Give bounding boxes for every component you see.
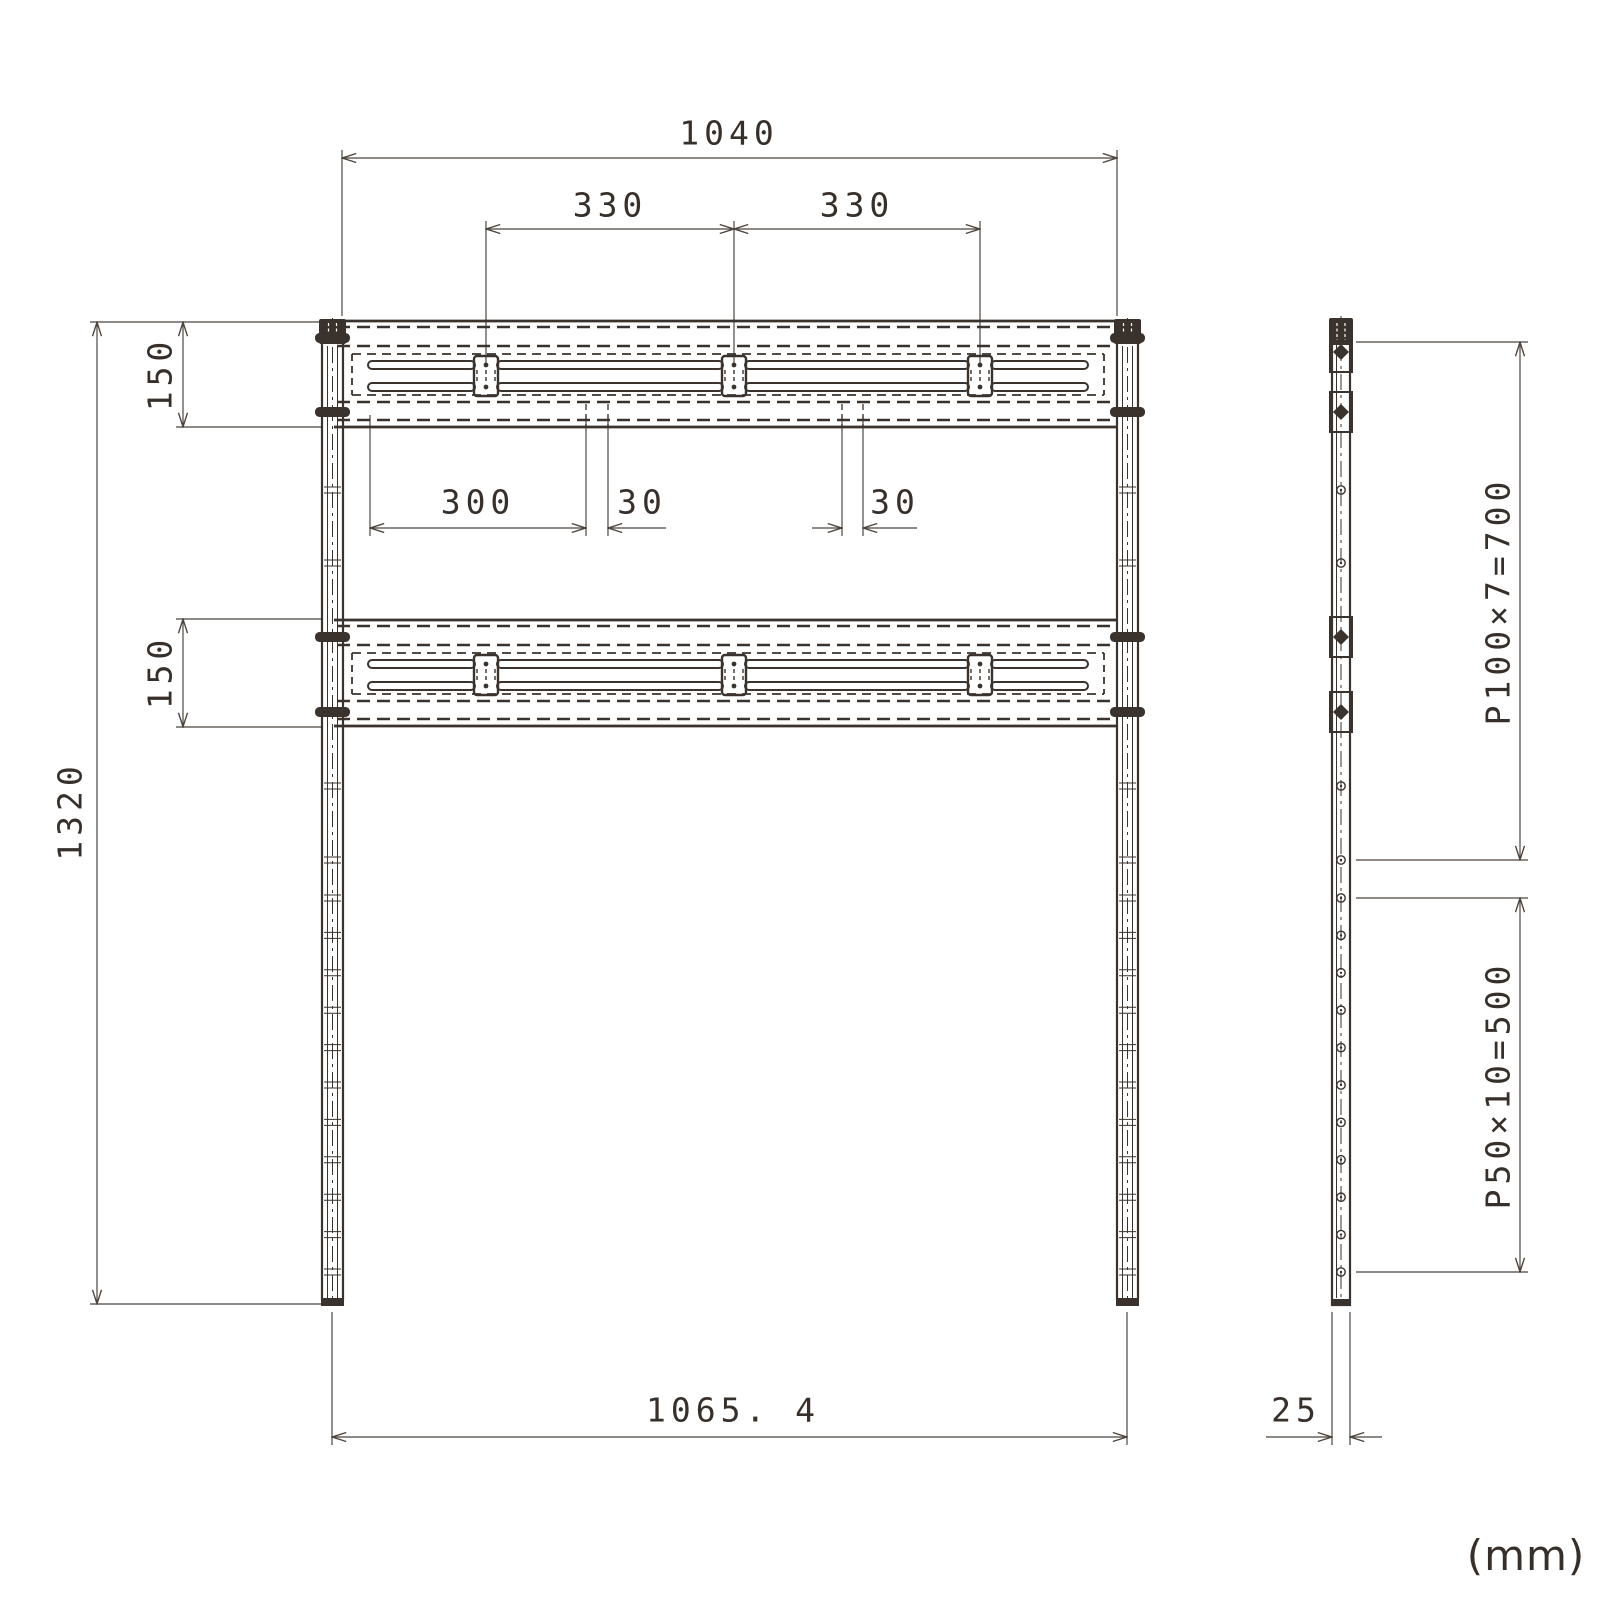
diamond-connector bbox=[1333, 404, 1349, 420]
rail-clamp bbox=[1110, 632, 1145, 642]
slot-bracket bbox=[722, 655, 746, 695]
rail-assembly bbox=[334, 321, 1116, 427]
slot-bracket bbox=[968, 655, 992, 695]
dim-rail-length-label: 1040 bbox=[679, 117, 778, 150]
mounting-slot bbox=[991, 660, 1088, 668]
dim-upper-rail-height-label: 150 bbox=[144, 337, 177, 412]
dim-slot-gap-left-label: 30 bbox=[617, 486, 667, 519]
dim-post-depth-label: 25 bbox=[1271, 1394, 1321, 1427]
support-post bbox=[315, 318, 350, 1306]
rail-clamp bbox=[1110, 333, 1145, 343]
dim-lower-rail-height-label: 150 bbox=[144, 635, 177, 710]
dim-overall-height-label: 1320 bbox=[54, 761, 87, 860]
drawing-linework bbox=[0, 0, 1600, 1600]
mounting-slot bbox=[368, 660, 475, 668]
technical-drawing-page: 1040 330 330 150 150 1320 300 30 30 1065… bbox=[0, 0, 1600, 1600]
rail-assembly bbox=[334, 620, 1116, 726]
mounting-slot bbox=[497, 682, 723, 690]
rail-clamp bbox=[1110, 707, 1145, 717]
rail-clamp bbox=[315, 707, 350, 717]
dim-upper-hole-pitch-label: P100×7=700 bbox=[1482, 477, 1515, 726]
rail-clamp bbox=[315, 632, 350, 642]
slot-bracket bbox=[474, 655, 498, 695]
mounting-slot bbox=[991, 361, 1088, 369]
post-end-cap bbox=[321, 1298, 344, 1306]
side-view-post bbox=[1329, 316, 1353, 1306]
mounting-slot bbox=[368, 383, 475, 391]
mounting-slot bbox=[745, 682, 969, 690]
post-end-cap bbox=[1116, 1298, 1139, 1306]
rail-clamp bbox=[1110, 407, 1145, 417]
diamond-connector bbox=[1333, 704, 1349, 720]
dim-bracket-pitch-left-label: 330 bbox=[573, 189, 648, 222]
mounting-slot bbox=[745, 383, 969, 391]
mounting-slot bbox=[368, 682, 475, 690]
diamond-connector bbox=[1333, 344, 1349, 360]
mounting-slot bbox=[745, 361, 969, 369]
mounting-slot bbox=[745, 660, 969, 668]
dim-slot-gap-right-label: 30 bbox=[870, 486, 920, 519]
mounting-slot bbox=[991, 383, 1088, 391]
rail-clamp bbox=[315, 407, 350, 417]
diamond-connector bbox=[1333, 629, 1349, 645]
dimension-lines bbox=[90, 150, 1528, 1445]
dim-lower-hole-pitch-label: P50×10=500 bbox=[1482, 961, 1515, 1210]
dim-overall-width-label: 1065. 4 bbox=[646, 1394, 820, 1427]
dim-bracket-pitch-right-label: 330 bbox=[820, 189, 895, 222]
post-top-cap bbox=[1329, 318, 1353, 344]
units-note: (mm) bbox=[1467, 1535, 1586, 1577]
mounting-slot bbox=[991, 682, 1088, 690]
post-end-cap bbox=[1331, 1299, 1351, 1306]
mounting-slot bbox=[497, 660, 723, 668]
rail-clamp bbox=[315, 333, 350, 343]
mounting-slot bbox=[368, 361, 475, 369]
dim-slot-length-label: 300 bbox=[441, 486, 516, 519]
mounting-slot bbox=[497, 383, 723, 391]
support-post bbox=[1110, 318, 1145, 1306]
mounting-slot bbox=[497, 361, 723, 369]
